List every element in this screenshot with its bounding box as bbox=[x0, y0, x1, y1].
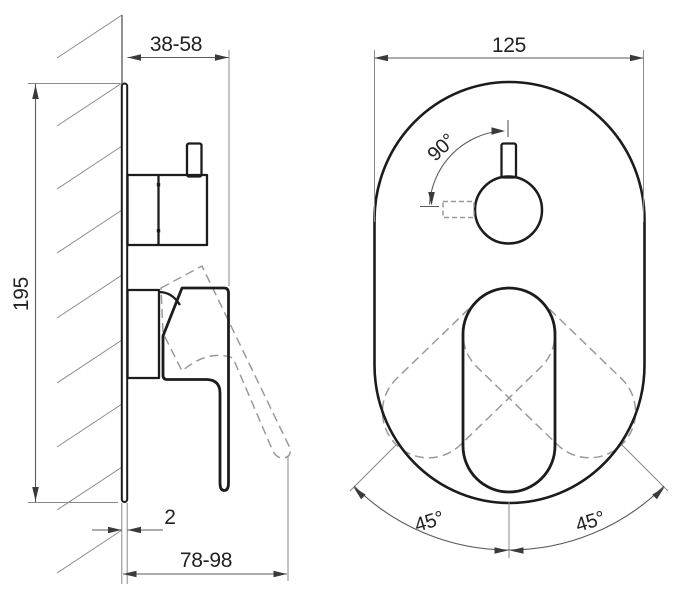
temperature-stem-side bbox=[187, 144, 202, 177]
technical-drawing: 38-58 195 2 78-98 bbox=[0, 0, 686, 600]
dim-label-knob-rotation: 90° bbox=[423, 130, 459, 166]
thermostat-cartridge-side bbox=[128, 144, 208, 246]
dim-label-plate-height: 195 bbox=[10, 277, 33, 311]
diverter-cartridge-side bbox=[128, 290, 160, 378]
side-view: 38-58 195 2 78-98 bbox=[10, 15, 290, 584]
escutcheon-plate bbox=[375, 82, 645, 503]
knob-stem-dashed bbox=[443, 202, 474, 218]
dim-handle-reach: 78-98 bbox=[123, 456, 288, 581]
dim-label-plate-thickness: 2 bbox=[164, 506, 175, 529]
lever-swing-annotation: 45° 45° bbox=[350, 445, 668, 558]
dim-label-swing-right: 45° bbox=[573, 507, 608, 537]
front-view: 90° 125 45° 45° bbox=[350, 34, 668, 558]
dim-plate-height: 195 bbox=[10, 84, 120, 503]
dim-label-plate-width: 125 bbox=[492, 34, 526, 57]
dim-label-handle-reach: 78-98 bbox=[180, 549, 232, 572]
diverter-lever-side bbox=[159, 288, 229, 491]
diverter-lever-front bbox=[463, 288, 555, 492]
dim-label-handle-depth: 38-58 bbox=[150, 33, 202, 56]
dim-handle-depth: 38-58 bbox=[128, 33, 230, 286]
dim-label-swing-left: 45° bbox=[412, 507, 447, 537]
drawing-svg: 38-58 195 2 78-98 bbox=[0, 0, 686, 600]
knob-stem bbox=[502, 144, 517, 178]
thermostat-knob bbox=[475, 177, 542, 244]
wall-hatching bbox=[57, 15, 122, 573]
